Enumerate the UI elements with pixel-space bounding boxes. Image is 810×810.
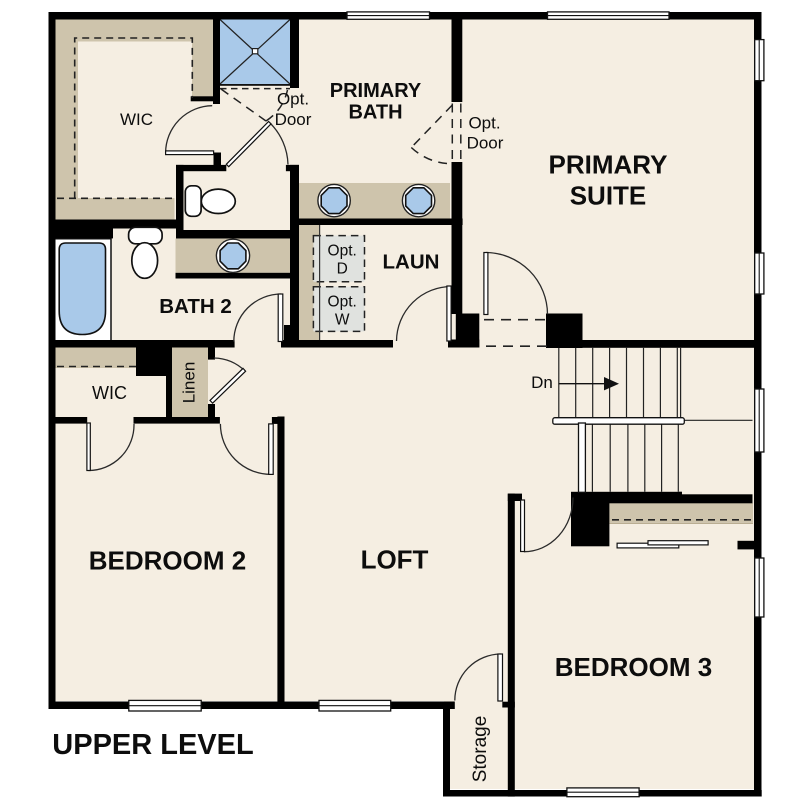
svg-text:LOFT: LOFT — [361, 545, 429, 575]
svg-text:D: D — [337, 260, 348, 277]
svg-text:BEDROOM 3: BEDROOM 3 — [555, 652, 712, 682]
svg-text:Door: Door — [467, 134, 504, 153]
svg-text:Opt.: Opt. — [468, 114, 500, 133]
svg-text:UPPER LEVEL: UPPER LEVEL — [52, 729, 253, 761]
svg-text:SUITE: SUITE — [570, 181, 647, 211]
svg-text:BEDROOM 2: BEDROOM 2 — [89, 546, 246, 576]
svg-text:Opt.: Opt. — [277, 90, 309, 109]
svg-text:Opt.: Opt. — [328, 294, 357, 311]
svg-text:PRIMARY: PRIMARY — [549, 150, 668, 180]
svg-text:Linen: Linen — [180, 362, 199, 404]
svg-text:BATH: BATH — [348, 102, 402, 124]
svg-text:LAUN: LAUN — [383, 251, 440, 274]
svg-text:BATH 2: BATH 2 — [159, 295, 232, 318]
svg-text:WIC: WIC — [92, 383, 127, 403]
svg-text:Opt.: Opt. — [328, 243, 357, 260]
svg-text:PRIMARY: PRIMARY — [330, 80, 422, 102]
svg-text:WIC: WIC — [120, 110, 153, 129]
svg-text:Storage: Storage — [470, 716, 491, 783]
svg-text:Door: Door — [275, 110, 312, 129]
svg-text:W: W — [335, 312, 350, 329]
svg-text:Dn: Dn — [531, 373, 553, 392]
